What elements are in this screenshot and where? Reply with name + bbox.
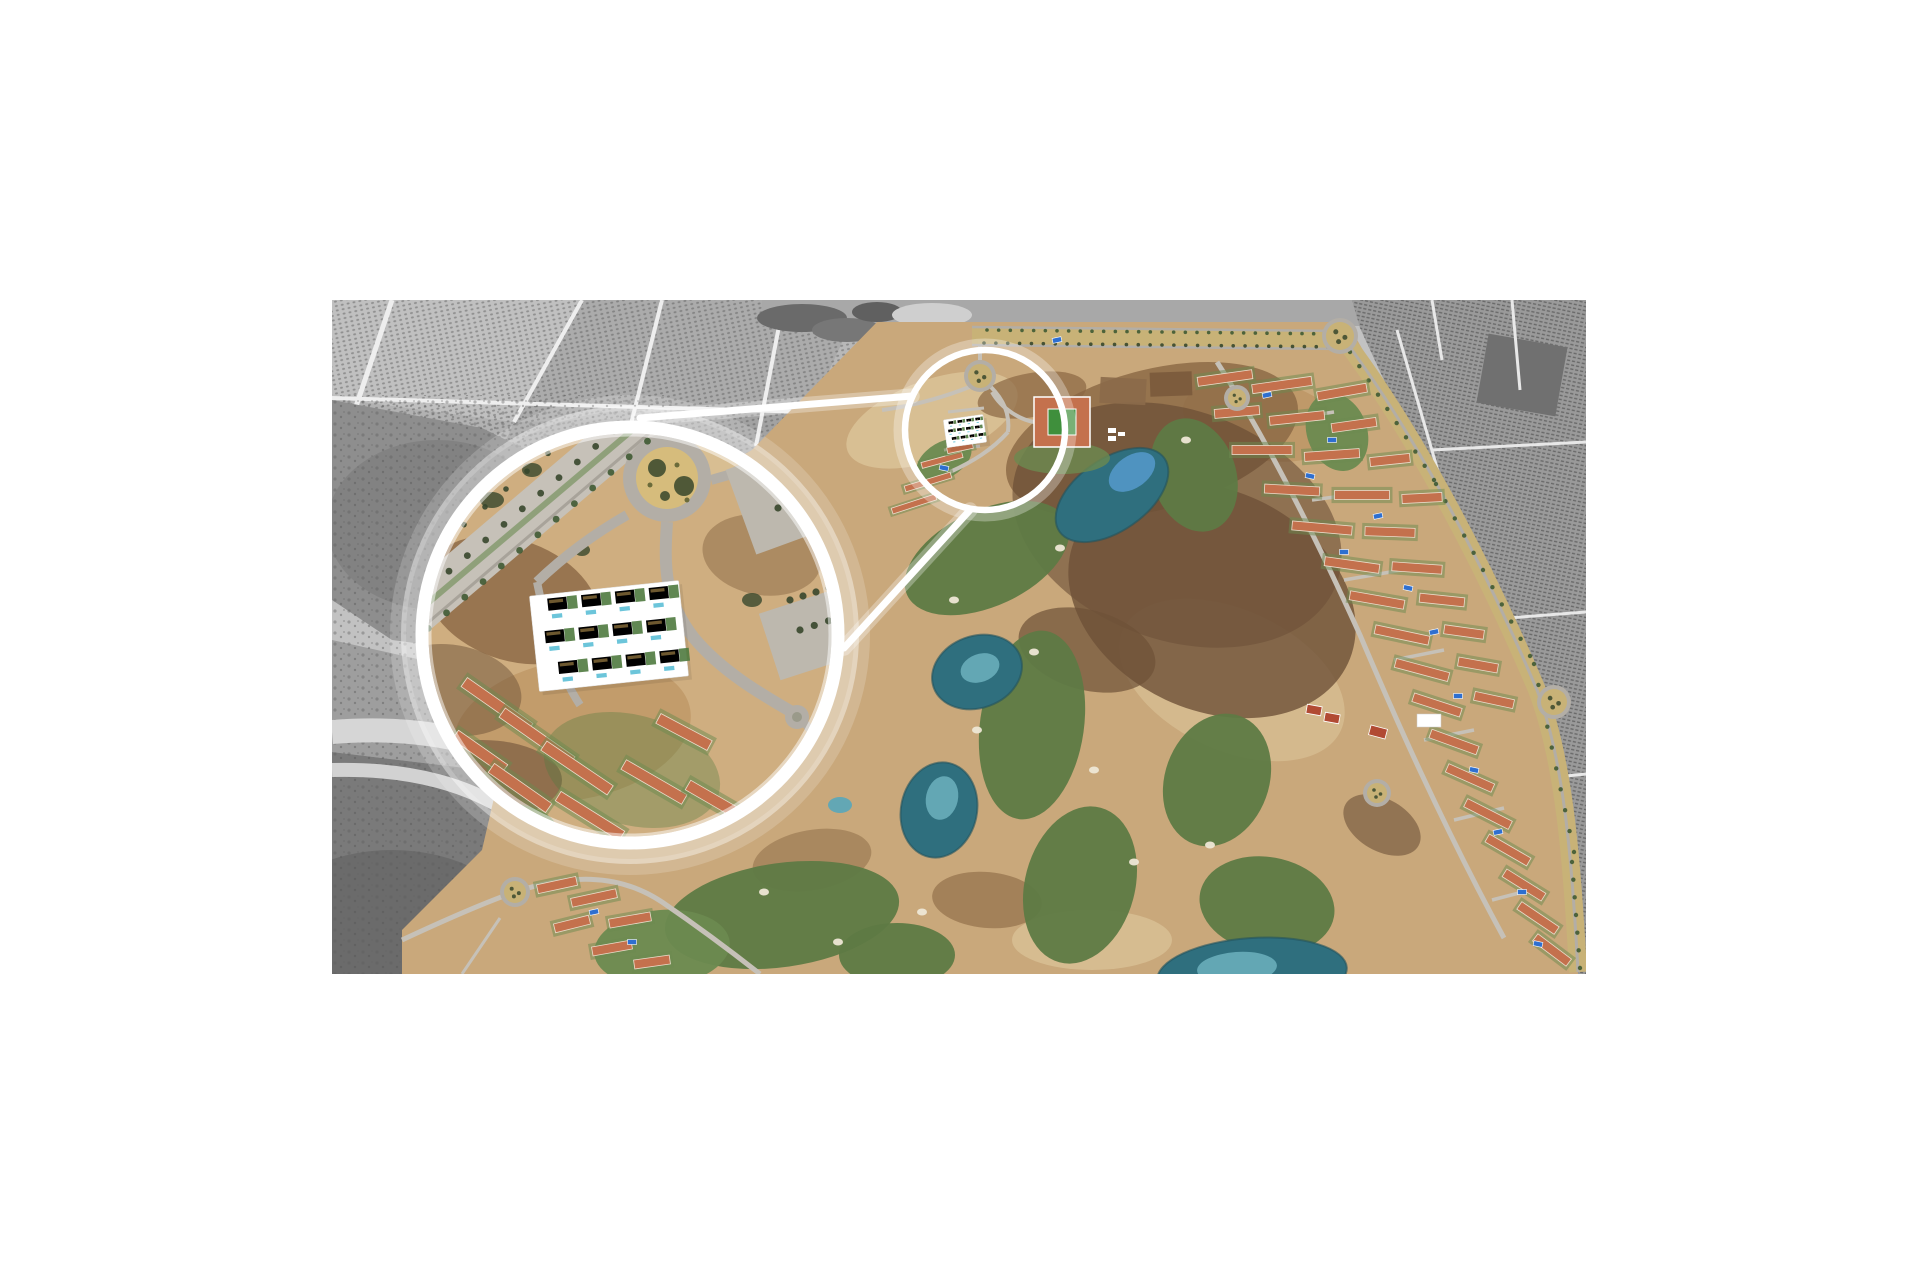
townhouse-row-group: [1399, 489, 1446, 508]
tree: [1509, 619, 1513, 623]
tree: [1102, 330, 1106, 334]
apartment-building: [557, 659, 578, 674]
building-pool: [619, 606, 630, 612]
townhouse-row: [1232, 446, 1292, 455]
building-lawn: [600, 592, 611, 606]
apartment-building: [960, 435, 966, 439]
building-pool: [953, 441, 956, 443]
swimming-pool: [1518, 890, 1527, 895]
townhouse-row: [1365, 527, 1415, 538]
apartment-building: [614, 589, 635, 604]
apartment-building: [578, 625, 599, 640]
highlighted-parcel-large: [529, 580, 692, 695]
building-lawn: [974, 433, 977, 437]
building-lawn: [962, 427, 965, 431]
tree: [1089, 342, 1093, 346]
tree: [537, 490, 544, 497]
building-lawn: [980, 416, 983, 420]
apartment-building: [948, 429, 954, 433]
tree: [1172, 330, 1176, 334]
tree: [1518, 637, 1522, 641]
tree: [1394, 421, 1398, 425]
tree: [1065, 342, 1069, 346]
tree: [1572, 850, 1576, 854]
tree: [1020, 329, 1024, 333]
tree: [574, 459, 581, 466]
building-lawn: [564, 628, 575, 642]
sand-bunker: [759, 889, 769, 896]
tree: [1032, 329, 1036, 333]
building-lawn: [971, 426, 974, 430]
roundabout-island: [1326, 322, 1354, 350]
apartment-building: [948, 421, 954, 425]
tree: [608, 469, 615, 476]
tree: [519, 505, 526, 512]
apartment-building: [646, 618, 667, 633]
swimming-pool: [1454, 694, 1463, 699]
tree: [1242, 331, 1246, 335]
tree: [796, 626, 803, 633]
tree: [1148, 343, 1152, 347]
building-pool: [976, 421, 979, 423]
tree: [811, 622, 818, 629]
sand-bunker: [1055, 545, 1065, 552]
roundabout: [500, 877, 530, 907]
tree: [1376, 392, 1380, 396]
roundabout-tree: [1379, 792, 1383, 796]
tree: [1009, 328, 1013, 332]
apartment-building: [957, 427, 963, 431]
roundabout-tree: [1336, 339, 1341, 344]
building-lawn: [957, 436, 960, 440]
tree: [556, 474, 563, 481]
roundabout-tree: [1556, 701, 1561, 706]
tree: [1532, 662, 1536, 666]
tree: [1536, 683, 1540, 687]
roof-detail: [962, 437, 963, 438]
tree: [1265, 331, 1269, 335]
apartment-building: [591, 656, 612, 671]
tree: [592, 443, 599, 450]
apartment-building: [969, 434, 975, 438]
roof-detail: [968, 428, 969, 429]
roundabout-tree: [1372, 788, 1376, 792]
roundabout-tree: [1374, 795, 1378, 799]
tree: [1195, 331, 1199, 335]
building-lawn: [665, 617, 676, 631]
building-lawn: [577, 658, 588, 672]
roundabout-tree: [1548, 696, 1553, 701]
building-pool: [583, 642, 594, 648]
sand-bunker: [1089, 767, 1099, 774]
building-pool: [979, 437, 982, 439]
swimming-pool: [1328, 438, 1337, 443]
apartment-building: [659, 649, 680, 664]
roundabout: [964, 360, 996, 392]
roundabout-tree: [510, 887, 514, 891]
aerial-photo-svg: [332, 300, 1586, 974]
tree: [1114, 330, 1118, 334]
tree: [1571, 877, 1575, 881]
building-pool: [976, 430, 979, 432]
roundabout: [1537, 685, 1571, 719]
tree: [1160, 343, 1164, 347]
tree: [589, 485, 596, 492]
tree: [1184, 343, 1188, 347]
tree: [1267, 344, 1271, 348]
tree: [1385, 407, 1389, 411]
tree: [1471, 551, 1475, 555]
tree: [1055, 329, 1059, 333]
apartment-building: [648, 586, 669, 601]
tree: [1125, 343, 1129, 347]
building-pool: [958, 424, 961, 426]
building-pool: [551, 613, 562, 619]
tree: [503, 486, 509, 492]
tree: [1125, 330, 1129, 334]
tree: [553, 516, 560, 523]
building-lawn: [632, 621, 643, 635]
tree: [1289, 332, 1293, 336]
townhouse-row-group: [1229, 442, 1295, 458]
terrain-patch: [742, 593, 762, 607]
apartment-building: [974, 425, 980, 429]
townhouse-row-group: [1332, 487, 1393, 503]
tree: [1303, 345, 1307, 349]
building-pool: [585, 609, 596, 615]
roundabout-island: [1367, 783, 1387, 803]
building-pool: [596, 672, 607, 678]
tree: [516, 547, 523, 554]
tree: [1453, 516, 1457, 520]
roundabout: [1224, 385, 1250, 411]
tree: [1277, 332, 1281, 336]
highlighted-parcel-small: [943, 414, 990, 452]
tree: [1528, 654, 1532, 658]
building-lawn: [598, 624, 609, 638]
building-pool: [650, 635, 661, 641]
tree: [626, 453, 633, 460]
page-canvas: [0, 0, 1920, 1280]
building-lawn: [634, 588, 645, 602]
tree: [480, 578, 487, 585]
tree: [1067, 329, 1071, 333]
tree: [1030, 342, 1034, 346]
apartment-building: [625, 652, 646, 667]
mag-mini-roundabout: [785, 705, 809, 729]
tree: [1101, 343, 1105, 347]
tree: [1490, 585, 1494, 589]
tree: [1300, 332, 1304, 336]
roundabout-tree: [1234, 400, 1237, 403]
roundabout-island: [504, 881, 526, 903]
tree: [1570, 860, 1574, 864]
apartment-building: [978, 432, 984, 436]
highlighted-parcel-small: [943, 414, 990, 452]
tree: [1500, 602, 1504, 606]
tree: [1312, 332, 1316, 336]
roundabout-island: [968, 364, 992, 388]
tree: [1207, 331, 1211, 335]
tree: [443, 609, 450, 616]
roundabout-island: [1541, 689, 1567, 715]
apartment-building: [581, 593, 602, 608]
tree: [1254, 331, 1258, 335]
highlighted-parcel-large: [529, 580, 692, 695]
tree: [571, 500, 578, 507]
building-lawn: [668, 585, 679, 599]
white-sign-rectangle: [1417, 714, 1441, 727]
tree: [482, 504, 488, 510]
tree: [1422, 464, 1426, 468]
tree: [1196, 344, 1200, 348]
roof-detail: [971, 436, 972, 437]
apartment-building: [966, 418, 972, 422]
roof-detail: [977, 419, 978, 420]
tree: [1077, 342, 1081, 346]
tree: [1079, 329, 1083, 333]
tree: [1558, 787, 1562, 791]
apartment-building: [951, 436, 957, 440]
tree: [1219, 331, 1223, 335]
tree: [1018, 342, 1022, 346]
building-pool: [958, 432, 961, 434]
building-pool: [967, 423, 970, 425]
tree: [1184, 330, 1188, 334]
building-lawn: [567, 595, 578, 609]
tree: [1434, 482, 1438, 486]
tree: [1149, 330, 1153, 334]
tree: [1550, 745, 1554, 749]
building-pool: [962, 440, 965, 442]
tree: [501, 521, 508, 528]
tree: [997, 328, 1001, 332]
tree: [482, 537, 489, 544]
tree: [498, 563, 505, 570]
roof-detail: [950, 431, 951, 432]
tree: [1243, 344, 1247, 348]
tree: [1137, 330, 1141, 334]
roof-detail: [968, 420, 969, 421]
roof-detail: [959, 430, 960, 431]
tree: [1574, 913, 1578, 917]
tree: [1578, 966, 1582, 970]
building-pool: [549, 645, 560, 651]
roundabout-tree: [1333, 329, 1338, 334]
roundabout-tree: [1342, 335, 1347, 340]
roundabout-tree: [517, 891, 521, 895]
swimming-pool: [628, 940, 637, 945]
tree: [644, 438, 651, 445]
tree: [1230, 331, 1234, 335]
building-lawn: [962, 419, 965, 423]
tree: [1090, 329, 1094, 333]
tree: [1220, 344, 1224, 348]
tree: [1404, 435, 1408, 439]
building-pool: [630, 669, 641, 675]
roundabout: [1322, 318, 1358, 354]
tree: [1572, 895, 1576, 899]
apartment-building: [547, 596, 568, 611]
building-pool: [653, 602, 664, 608]
tree: [1314, 345, 1318, 349]
roundabout-island: [1228, 389, 1246, 407]
tree: [1279, 345, 1283, 349]
tree: [1291, 345, 1295, 349]
tree: [985, 328, 989, 332]
roundabout-tree: [1550, 705, 1555, 710]
tree: [1044, 329, 1048, 333]
building-lawn: [983, 432, 986, 436]
townhouse-row: [1335, 491, 1390, 500]
roundabout-tree: [982, 375, 986, 379]
sand-bunker: [972, 727, 982, 734]
apartment-building: [612, 622, 633, 637]
building-pool: [970, 438, 973, 440]
apartment-building: [965, 426, 971, 430]
townhouse-row-group: [1261, 480, 1323, 499]
sand-bunker: [917, 909, 927, 916]
building-lawn: [611, 655, 622, 669]
tree: [1462, 533, 1466, 537]
tree: [1113, 343, 1117, 347]
tree: [1231, 344, 1235, 348]
tree: [534, 531, 541, 538]
roof-detail: [977, 427, 978, 428]
swimming-pool: [1340, 550, 1349, 555]
building-lawn: [953, 420, 956, 424]
building-lawn: [645, 651, 656, 665]
tree: [1208, 344, 1212, 348]
roundabout-tree: [977, 379, 981, 383]
roundabout-tree: [1233, 394, 1236, 397]
sand-bunker: [1205, 842, 1215, 849]
roundabout-tree: [974, 370, 978, 374]
tree: [1575, 930, 1579, 934]
tree: [446, 568, 453, 575]
sand-bunker: [833, 939, 843, 946]
tree: [1432, 478, 1436, 482]
tree: [524, 468, 530, 474]
roof-detail: [959, 422, 960, 423]
building-lawn: [971, 418, 974, 422]
tree: [799, 592, 806, 599]
building-lawn: [980, 425, 983, 429]
apartment-building: [957, 419, 963, 423]
townhouse-row-group: [1362, 523, 1419, 541]
roof-detail: [950, 423, 951, 424]
golf-pond: [828, 797, 852, 813]
tree: [1576, 948, 1580, 952]
roof-detail: [980, 435, 981, 436]
tree: [1554, 766, 1558, 770]
tree: [1357, 364, 1361, 368]
building-lawn: [679, 648, 690, 662]
tree: [1567, 829, 1571, 833]
building-pool: [616, 638, 627, 644]
building-lawn: [966, 435, 969, 439]
tree: [464, 552, 471, 559]
sand-bunker: [1129, 859, 1139, 866]
townhouse-row: [1402, 492, 1442, 503]
tree: [1255, 344, 1259, 348]
apartment-building: [544, 629, 565, 644]
tree: [1413, 449, 1417, 453]
apartment-building: [975, 417, 981, 421]
building-pool: [949, 425, 952, 427]
roundabout-tree: [1239, 397, 1242, 400]
tree: [1160, 330, 1164, 334]
sand-bunker: [1181, 437, 1191, 444]
building-pool: [663, 665, 674, 671]
tree: [1563, 808, 1567, 812]
tree: [461, 594, 468, 601]
roof-detail: [953, 439, 954, 440]
tree: [1481, 568, 1485, 572]
building-lawn: [953, 428, 956, 432]
aerial-photo: [332, 300, 1586, 974]
tree: [1172, 343, 1176, 347]
building-pool: [562, 676, 573, 682]
tree: [1545, 724, 1549, 728]
tree: [786, 596, 793, 603]
building-pool: [949, 433, 952, 435]
roundabout: [1363, 779, 1391, 807]
tree: [1042, 342, 1046, 346]
tree: [812, 588, 819, 595]
building-pool: [967, 431, 970, 433]
tree: [1136, 343, 1140, 347]
sand-bunker: [949, 597, 959, 604]
roundabout-tree: [512, 894, 516, 898]
sand-bunker: [1029, 649, 1039, 656]
